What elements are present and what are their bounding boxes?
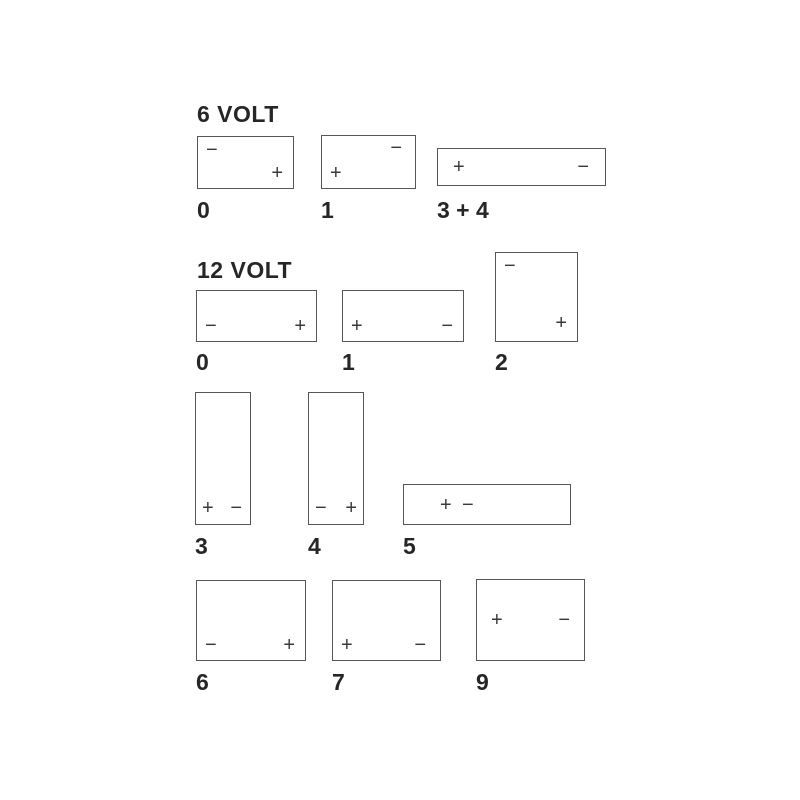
- positive-terminal-sign: +: [491, 610, 503, 630]
- battery-label-12v-2: 2: [495, 349, 508, 376]
- battery-label-12v-9: 9: [476, 669, 489, 696]
- negative-terminal-sign: −: [205, 316, 217, 336]
- positive-terminal-sign: +: [555, 313, 567, 333]
- battery-box-6v-1: − +: [321, 135, 416, 189]
- negative-terminal-sign: −: [462, 495, 474, 515]
- negative-terminal-sign: −: [441, 316, 453, 336]
- battery-box-12v-9: + −: [476, 579, 585, 661]
- negative-terminal-sign: −: [205, 635, 217, 655]
- positive-terminal-sign: +: [271, 163, 283, 183]
- battery-box-6v-3-4: + −: [437, 148, 606, 186]
- positive-terminal-sign: +: [294, 316, 306, 336]
- battery-label-12v-0: 0: [196, 349, 209, 376]
- battery-label-12v-6: 6: [196, 669, 209, 696]
- battery-box-12v-7: + −: [332, 580, 441, 661]
- negative-terminal-sign: −: [230, 498, 242, 518]
- battery-box-6v-0: − +: [197, 136, 294, 189]
- battery-box-12v-2: − +: [495, 252, 578, 342]
- battery-box-12v-1: + −: [342, 290, 464, 342]
- positive-terminal-sign: +: [283, 635, 295, 655]
- battery-label-12v-4: 4: [308, 533, 321, 560]
- positive-terminal-sign: +: [440, 495, 452, 515]
- battery-terminal-layout-diagram: 6 VOLT − + 0 − + 1 + − 3 + 4 12 VOLT − +…: [0, 0, 800, 800]
- battery-box-12v-4: − +: [308, 392, 364, 525]
- negative-terminal-sign: −: [206, 140, 218, 160]
- positive-terminal-sign: +: [341, 635, 353, 655]
- negative-terminal-sign: −: [504, 256, 516, 276]
- negative-terminal-sign: −: [558, 610, 570, 630]
- battery-label-6v-1: 1: [321, 197, 334, 224]
- positive-terminal-sign: +: [351, 316, 363, 336]
- negative-terminal-sign: −: [414, 635, 426, 655]
- section-title-12-volt: 12 VOLT: [197, 257, 292, 284]
- battery-label-12v-1: 1: [342, 349, 355, 376]
- battery-label-12v-5: 5: [403, 533, 416, 560]
- positive-terminal-sign: +: [453, 157, 465, 177]
- negative-terminal-sign: −: [390, 138, 402, 158]
- battery-box-12v-6: − +: [196, 580, 306, 661]
- battery-label-12v-3: 3: [195, 533, 208, 560]
- battery-box-12v-5: + −: [403, 484, 571, 525]
- battery-label-6v-0: 0: [197, 197, 210, 224]
- battery-box-12v-3: + −: [195, 392, 251, 525]
- battery-label-6v-3-4: 3 + 4: [437, 197, 489, 224]
- positive-terminal-sign: +: [330, 163, 342, 183]
- negative-terminal-sign: −: [577, 157, 589, 177]
- negative-terminal-sign: −: [315, 498, 327, 518]
- battery-box-12v-0: − +: [196, 290, 317, 342]
- positive-terminal-sign: +: [345, 498, 357, 518]
- section-title-6-volt: 6 VOLT: [197, 101, 279, 128]
- battery-label-12v-7: 7: [332, 669, 345, 696]
- positive-terminal-sign: +: [202, 498, 214, 518]
